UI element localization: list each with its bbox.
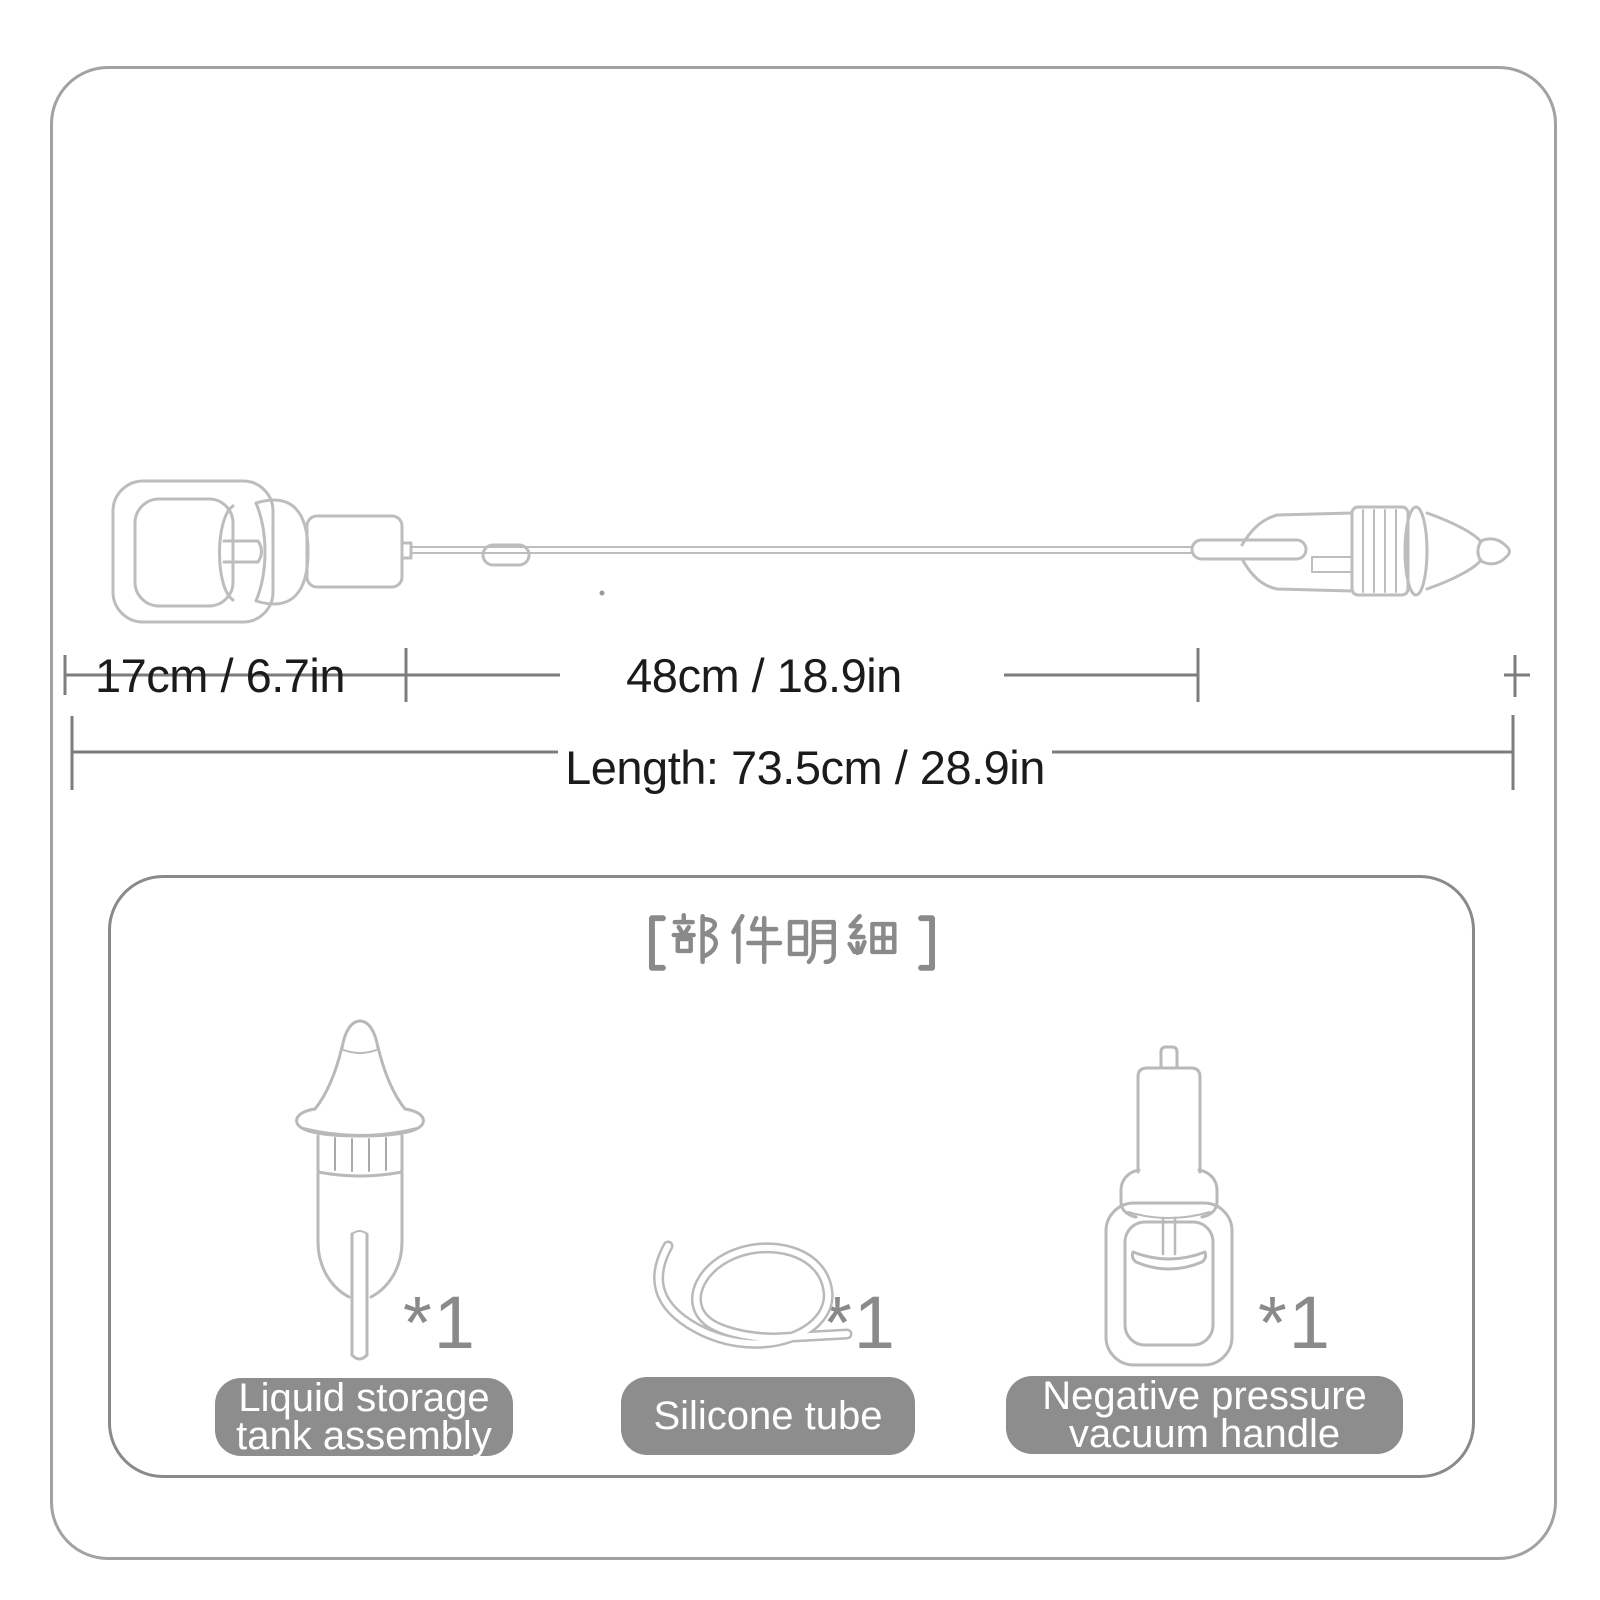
dimension-label-total-length: Length: 73.5cm / 28.9in bbox=[565, 740, 1045, 795]
nozzle-tip bbox=[1478, 539, 1510, 564]
tank-drop-tube bbox=[352, 1234, 367, 1355]
tank-collar-ribs bbox=[1363, 510, 1396, 592]
tank-collar-ribs-v bbox=[335, 1138, 386, 1171]
silicone-tube-outline bbox=[659, 1246, 847, 1343]
tank-collar-bottom bbox=[318, 1172, 402, 1176]
handle-grip-bar bbox=[224, 541, 262, 562]
handle-outer-loop bbox=[113, 481, 273, 622]
line-art-layer bbox=[0, 0, 1600, 1600]
handle-shoulder-seam bbox=[1128, 1212, 1210, 1218]
part-drawing-tank bbox=[297, 1021, 424, 1359]
assembled-device-drawing bbox=[113, 481, 1510, 622]
tank-tube-holder bbox=[1192, 540, 1306, 559]
tank-body-v bbox=[318, 1172, 402, 1297]
handle-opening-v bbox=[1125, 1222, 1213, 1345]
handle-shoulder bbox=[1121, 1170, 1217, 1217]
dimension-label-tube-section: 48cm / 18.9in bbox=[626, 648, 902, 703]
speck bbox=[600, 591, 605, 596]
tank-collar-sides bbox=[318, 1136, 402, 1172]
product-spec-sheet: 17cm / 6.7in 48cm / 18.9in Length: 73.5c… bbox=[0, 0, 1600, 1600]
tank-cone bbox=[315, 1047, 405, 1109]
handle-neck bbox=[256, 500, 308, 604]
dimension-label-handle-section: 17cm / 6.7in bbox=[95, 648, 345, 703]
tank-tube-top bbox=[352, 1231, 367, 1234]
tank-tip bbox=[342, 1021, 378, 1048]
tank-tip-seam bbox=[341, 1049, 379, 1053]
handle-cylinder-v bbox=[1138, 1068, 1200, 1172]
tank-tube-end bbox=[352, 1355, 367, 1359]
part-drawing-silicone-tube bbox=[659, 1246, 847, 1343]
handle-grip-crossbar bbox=[1132, 1252, 1205, 1269]
tank-body bbox=[1242, 513, 1352, 591]
nozzle-cone bbox=[1427, 513, 1481, 589]
part-drawing-vacuum-handle bbox=[1106, 1047, 1232, 1365]
tank-inner-lines bbox=[1312, 557, 1352, 572]
handle-grip-curve bbox=[220, 506, 234, 600]
tank-brim bbox=[297, 1109, 424, 1136]
handle-nub bbox=[1161, 1047, 1177, 1068]
tank-collar bbox=[1352, 507, 1408, 595]
handle-cylinder bbox=[307, 516, 402, 587]
